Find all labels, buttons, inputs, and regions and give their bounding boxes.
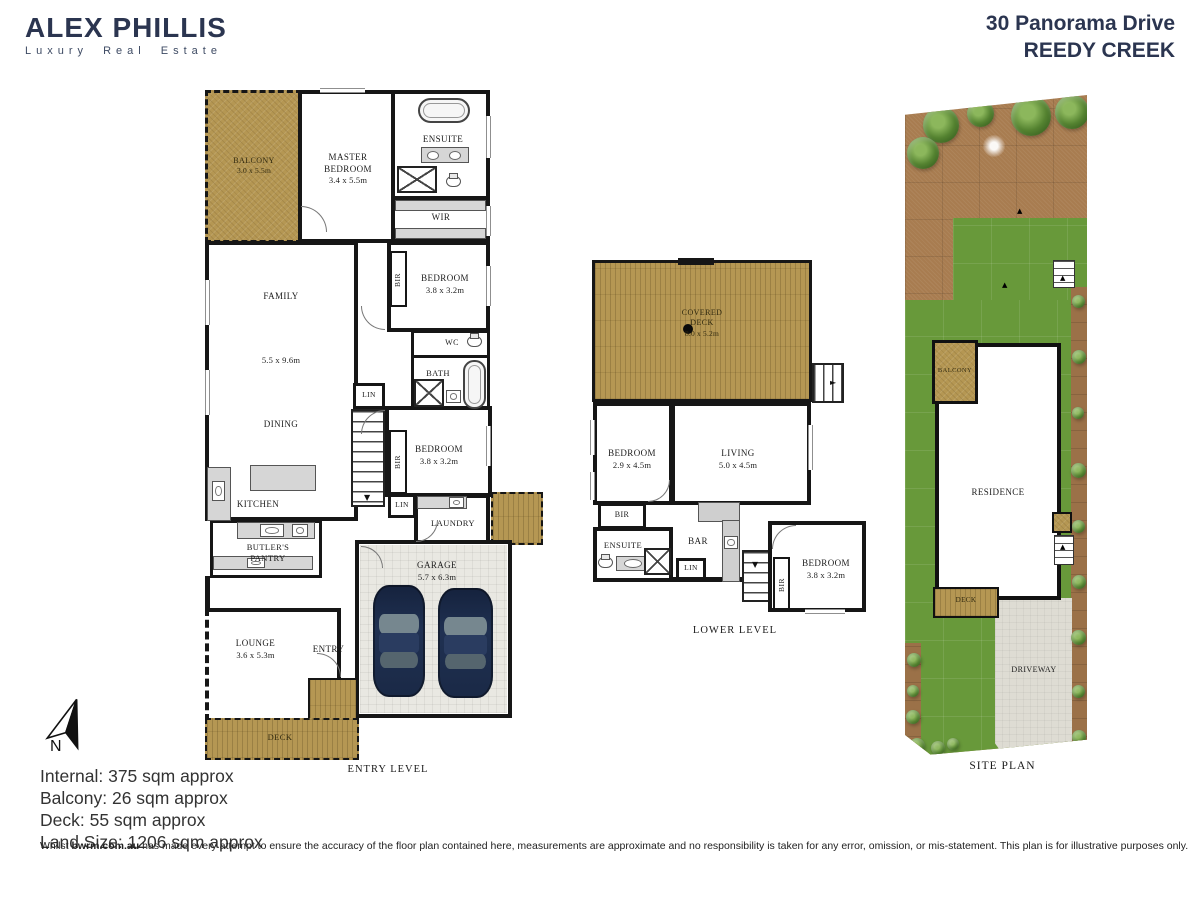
- bush-icon: [907, 653, 921, 667]
- wir-label: WIR: [397, 212, 485, 224]
- bush-icon: [931, 741, 945, 755]
- garage-label: GARAGE 5.7 x 6.3m: [391, 560, 483, 583]
- lounge-label: LOUNGE 3.6 x 5.3m: [218, 638, 293, 661]
- window: [486, 426, 491, 466]
- window: [486, 206, 491, 236]
- covered-deck-label: COVERED DECK 8.0 x 5.2m: [662, 308, 742, 339]
- bathtub-icon: [418, 98, 470, 123]
- bar-label: BAR: [678, 536, 718, 548]
- basin-icon: [427, 151, 439, 160]
- laundry-label: LAUNDRY: [418, 518, 488, 529]
- bush-icon: [1071, 463, 1086, 478]
- area-internal: Internal: 375 sqm approx: [40, 765, 263, 787]
- car-roof: [444, 635, 487, 655]
- bedroom2-label: BEDROOM 3.8 x 3.2m: [398, 444, 480, 467]
- lower-level-plan: ► ▼ COVERED DECK 8.0 x 5.2m BEDROOM 2.9 …: [590, 260, 882, 650]
- robe-shelf-icon: [395, 228, 486, 239]
- entry-level-caption: ENTRY LEVEL: [308, 764, 468, 775]
- agency-logo-name: ALEX PHILLIS: [25, 12, 227, 44]
- linen1-label: LIN: [354, 390, 384, 400]
- toilet-icon: [598, 557, 613, 568]
- level-marker: ▲: [1017, 207, 1022, 215]
- ensuite2-label: ENSUITE: [594, 540, 652, 551]
- entry-level-plan: ▼: [205, 88, 550, 788]
- sink-icon: [446, 390, 461, 403]
- shower-icon: [414, 379, 444, 407]
- balcony-label: BALCONY 3.0 x 5.5m: [215, 156, 293, 176]
- bath-label: BATH: [417, 368, 459, 379]
- bush-icon: [1072, 730, 1086, 744]
- dining-label: DINING: [236, 419, 326, 431]
- entry-label: ENTRY: [301, 644, 356, 656]
- bir4-label: BIR: [777, 568, 786, 602]
- bathtub-icon: [463, 360, 486, 409]
- window: [486, 266, 491, 306]
- ensuite-label: ENSUITE: [405, 134, 481, 146]
- address-street: 30 Panorama Drive: [986, 10, 1175, 37]
- car-icon: [438, 588, 493, 698]
- bedroom1-label: BEDROOM 3.8 x 3.2m: [405, 273, 485, 296]
- deck-wall-segment: [678, 258, 714, 265]
- kitchen-label: KITCHEN: [223, 499, 293, 511]
- disclaimer-text: Whilst bwrm.com.au has made every attemp…: [40, 840, 1188, 852]
- window: [805, 609, 845, 614]
- property-address: 30 Panorama Drive REEDY CREEK: [986, 10, 1175, 64]
- toilet-icon: [467, 336, 482, 347]
- stairs-down-arrow: ▼: [364, 493, 370, 502]
- bar-sink-icon: [724, 536, 738, 549]
- residence-label: RESIDENCE: [945, 487, 1051, 499]
- car-roof: [379, 633, 419, 653]
- family-dims: 5.5 x 9.6m: [236, 355, 326, 366]
- butlers-pantry-label: BUTLER'S PANTRY: [231, 542, 305, 564]
- bush-icon: [906, 710, 920, 724]
- cooktop-icon: [260, 524, 284, 537]
- disclaimer-suffix: has made every attempt to ensure the acc…: [139, 840, 1188, 852]
- agency-logo-tagline: Luxury Real Estate: [25, 45, 227, 57]
- driveway-surface: [995, 598, 1072, 756]
- toilet-icon: [446, 176, 461, 187]
- bush-icon: [907, 685, 919, 697]
- robe-shelf-icon: [395, 200, 486, 211]
- bir1-label: BIR: [393, 263, 402, 297]
- window: [205, 370, 210, 415]
- tree-icon: [1055, 95, 1089, 129]
- shower-icon: [397, 166, 437, 193]
- bush-icon: [909, 738, 925, 754]
- master-bedroom-label: MASTER BEDROOM 3.4 x 5.5m: [308, 152, 388, 186]
- deck-label: DECK: [245, 732, 315, 743]
- disclaimer-prefix: Whilst: [40, 840, 72, 852]
- appliance-icon: [292, 524, 308, 537]
- site-plan: ▲ ▲ ▲ ▲ BALCONY RESIDENCE DECK DRIVEWAY: [905, 95, 1087, 775]
- disclaimer-brand: bwrm.com.au: [72, 840, 140, 852]
- shower-icon: [644, 548, 671, 575]
- bush-icon: [1071, 630, 1086, 645]
- basin-icon: [624, 559, 642, 568]
- living-label: LIVING 5.0 x 4.5m: [698, 448, 778, 471]
- floorplan-page: { "header": { "brand": "ALEX PHILLIS", "…: [0, 0, 1200, 900]
- address-suburb: REEDY CREEK: [986, 37, 1175, 64]
- window: [486, 116, 491, 158]
- linen2-label: LIN: [389, 500, 415, 510]
- bedroom4-label: BEDROOM 3.8 x 3.2m: [790, 558, 862, 581]
- side-deck: [491, 492, 543, 545]
- stairs-down-arrow: ▼: [752, 560, 758, 569]
- hall-outer-wall: [205, 576, 210, 610]
- tree-icon: [1011, 96, 1051, 136]
- car-icon: [373, 585, 425, 697]
- stairs-right-arrow: ►: [830, 378, 836, 387]
- linen3-label: LIN: [677, 563, 705, 573]
- car-window: [379, 614, 419, 634]
- level-marker: ▲: [1060, 274, 1065, 282]
- driveway-label: DRIVEWAY: [998, 665, 1070, 675]
- bedroom1-door: [361, 306, 385, 330]
- site-right-patch: [1052, 512, 1072, 533]
- window: [590, 472, 595, 500]
- bush-icon: [1072, 575, 1086, 589]
- window: [205, 280, 210, 325]
- bar-counter-icon: [698, 502, 740, 522]
- deck-stairs: [812, 363, 844, 403]
- family-label: FAMILY: [236, 291, 326, 303]
- car-window: [445, 654, 486, 669]
- bush-icon: [1072, 520, 1085, 533]
- site-deck-label: DECK: [933, 596, 999, 605]
- sink-icon: [212, 481, 225, 501]
- wc-label: WC: [437, 338, 467, 348]
- level-marker: ▲: [1002, 281, 1007, 289]
- bush-icon: [947, 738, 959, 750]
- car-window: [444, 617, 487, 637]
- bar-counter-icon: [722, 520, 740, 582]
- bush-icon: [1072, 295, 1085, 308]
- level-marker: ▲: [1060, 543, 1065, 551]
- light-glow: [983, 135, 1005, 157]
- agency-logo: ALEX PHILLIS Luxury Real Estate: [25, 12, 227, 57]
- site-balcony-label: BALCONY: [932, 367, 978, 375]
- area-deck: Deck: 55 sqm approx: [40, 809, 263, 831]
- sink-icon: [449, 497, 464, 508]
- kitchen-island-icon: [250, 465, 316, 491]
- bedroom3-label: BEDROOM 2.9 x 4.5m: [592, 448, 672, 471]
- bush-icon: [1072, 685, 1085, 698]
- north-label: N: [50, 738, 62, 756]
- window: [808, 425, 813, 470]
- bush-icon: [1072, 407, 1084, 419]
- bush-icon: [1072, 350, 1086, 364]
- lower-stairs: [742, 550, 770, 602]
- north-compass: N: [42, 696, 94, 760]
- area-balcony: Balcony: 26 sqm approx: [40, 787, 263, 809]
- site-plan-caption: SITE PLAN: [940, 760, 1065, 772]
- window: [320, 88, 365, 93]
- tree-icon: [967, 100, 994, 127]
- lower-level-caption: LOWER LEVEL: [655, 625, 815, 636]
- basin-icon: [449, 151, 461, 160]
- car-window: [380, 652, 418, 668]
- bir3-label: BIR: [600, 510, 644, 520]
- bush-icon: [907, 137, 939, 169]
